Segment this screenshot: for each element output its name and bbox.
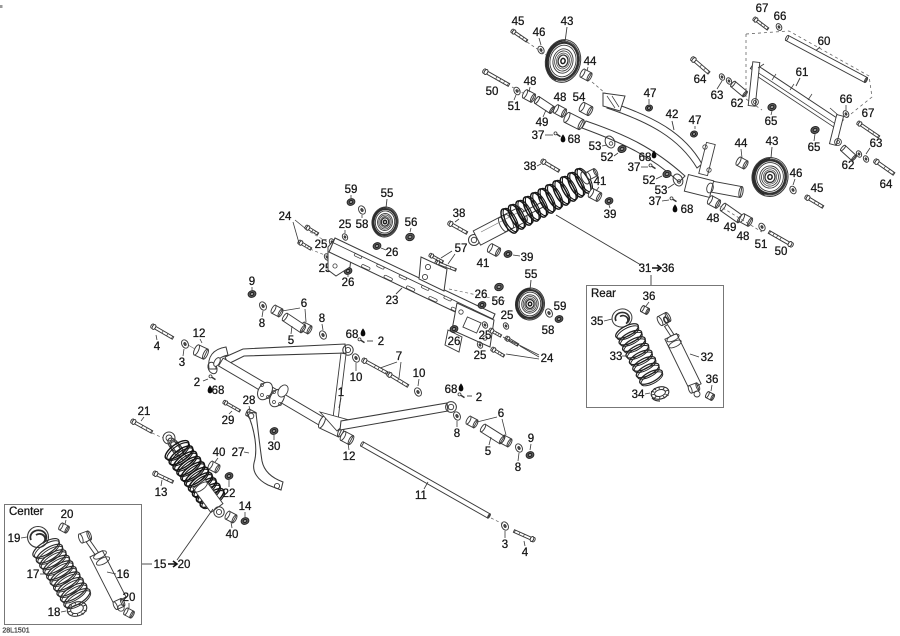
svg-text:17: 17 xyxy=(27,569,40,581)
svg-text:8: 8 xyxy=(454,428,460,440)
svg-text:38: 38 xyxy=(524,161,537,173)
svg-text:23: 23 xyxy=(386,295,399,307)
svg-text:1: 1 xyxy=(338,387,344,399)
svg-text:65: 65 xyxy=(765,116,778,128)
svg-text:35: 35 xyxy=(591,316,604,328)
svg-text:59: 59 xyxy=(345,184,358,196)
svg-text:41: 41 xyxy=(594,176,607,188)
svg-text:45: 45 xyxy=(811,183,824,195)
svg-text:48: 48 xyxy=(707,213,720,225)
svg-text:68: 68 xyxy=(568,134,581,146)
svg-text:8: 8 xyxy=(319,313,325,325)
svg-text:49: 49 xyxy=(724,222,737,234)
svg-text:14: 14 xyxy=(239,501,252,513)
svg-text:44: 44 xyxy=(735,138,748,150)
svg-text:48: 48 xyxy=(524,76,537,88)
svg-text:68: 68 xyxy=(639,152,652,164)
svg-text:32: 32 xyxy=(701,352,714,364)
svg-text:30: 30 xyxy=(268,441,281,453)
svg-text:18: 18 xyxy=(48,607,61,619)
svg-text:26: 26 xyxy=(386,247,399,259)
svg-text:5: 5 xyxy=(288,335,294,347)
svg-text:39: 39 xyxy=(604,209,617,221)
svg-text:19: 19 xyxy=(8,533,21,545)
svg-text:46: 46 xyxy=(533,27,546,39)
svg-text:58: 58 xyxy=(356,219,369,231)
svg-text:8: 8 xyxy=(259,318,265,330)
svg-text:44: 44 xyxy=(584,56,597,68)
svg-text:20: 20 xyxy=(123,592,136,604)
svg-text:15: 15 xyxy=(154,559,167,571)
svg-text:63: 63 xyxy=(870,138,883,150)
svg-text:63: 63 xyxy=(711,90,724,102)
svg-text:9: 9 xyxy=(249,276,255,288)
svg-text:49: 49 xyxy=(536,117,549,129)
svg-text:47: 47 xyxy=(689,115,702,127)
svg-text:11: 11 xyxy=(415,490,427,502)
svg-text:58: 58 xyxy=(542,325,555,337)
svg-text:13: 13 xyxy=(155,487,168,499)
svg-text:39: 39 xyxy=(521,252,534,264)
svg-text:61: 61 xyxy=(796,67,809,79)
svg-text:24: 24 xyxy=(541,353,554,365)
svg-text:51: 51 xyxy=(508,101,521,113)
svg-text:28: 28 xyxy=(243,395,256,407)
svg-text:33: 33 xyxy=(610,351,623,363)
svg-text:7: 7 xyxy=(396,351,402,363)
svg-text:26: 26 xyxy=(342,277,355,289)
svg-text:37: 37 xyxy=(649,196,662,208)
svg-text:67: 67 xyxy=(756,3,769,15)
svg-text:52: 52 xyxy=(601,152,614,164)
svg-text:43: 43 xyxy=(561,16,574,28)
svg-text:10: 10 xyxy=(350,372,363,384)
svg-text:36: 36 xyxy=(662,263,675,275)
svg-text:6: 6 xyxy=(498,408,504,420)
svg-text:66: 66 xyxy=(774,11,787,23)
svg-text:26: 26 xyxy=(448,336,461,348)
svg-text:62: 62 xyxy=(842,160,855,172)
svg-text:4: 4 xyxy=(522,547,529,559)
svg-text:4: 4 xyxy=(154,341,161,353)
svg-text:25: 25 xyxy=(474,350,487,362)
svg-text:53: 53 xyxy=(589,141,602,153)
svg-text:2: 2 xyxy=(194,377,200,389)
svg-text:12: 12 xyxy=(343,451,356,463)
svg-text:68: 68 xyxy=(445,384,458,396)
svg-text:66: 66 xyxy=(840,94,853,106)
svg-text:56: 56 xyxy=(492,296,505,308)
svg-text:36: 36 xyxy=(706,374,719,386)
svg-text:10: 10 xyxy=(413,368,426,380)
svg-text:46: 46 xyxy=(790,168,803,180)
svg-text:34: 34 xyxy=(632,389,645,401)
svg-text:28L1501: 28L1501 xyxy=(2,628,29,635)
svg-text:47: 47 xyxy=(644,88,657,100)
svg-text:3: 3 xyxy=(179,357,185,369)
svg-text:68: 68 xyxy=(681,204,694,216)
svg-text:48: 48 xyxy=(737,231,750,243)
svg-text:8: 8 xyxy=(515,462,521,474)
svg-text:59: 59 xyxy=(554,301,567,313)
svg-text:62: 62 xyxy=(731,98,744,110)
svg-text:20: 20 xyxy=(178,559,191,571)
svg-text:40: 40 xyxy=(226,529,239,541)
svg-text:52: 52 xyxy=(643,175,656,187)
svg-text:29: 29 xyxy=(222,415,235,427)
svg-text:64: 64 xyxy=(880,179,893,191)
svg-text:24: 24 xyxy=(279,211,292,223)
svg-text:2: 2 xyxy=(476,392,482,404)
svg-text:57: 57 xyxy=(455,243,468,255)
svg-text:68: 68 xyxy=(212,385,225,397)
svg-text:6: 6 xyxy=(301,298,307,310)
svg-text:64: 64 xyxy=(694,74,707,86)
svg-text:Center: Center xyxy=(9,506,44,518)
svg-text:55: 55 xyxy=(381,188,394,200)
svg-text:68: 68 xyxy=(346,329,359,341)
svg-text:41: 41 xyxy=(477,258,490,270)
svg-text:45: 45 xyxy=(512,16,525,28)
svg-text:56: 56 xyxy=(405,217,418,229)
svg-text:50: 50 xyxy=(486,86,499,98)
svg-text:65: 65 xyxy=(808,142,821,154)
svg-text:2: 2 xyxy=(378,336,384,348)
svg-text:9: 9 xyxy=(528,433,534,445)
svg-text:37: 37 xyxy=(532,130,545,142)
svg-text:42: 42 xyxy=(666,109,679,121)
svg-text:3: 3 xyxy=(502,539,508,551)
svg-text:43: 43 xyxy=(766,136,779,148)
svg-text:31: 31 xyxy=(639,263,652,275)
svg-text:27: 27 xyxy=(232,447,245,459)
svg-text:38: 38 xyxy=(453,208,466,220)
svg-text:36: 36 xyxy=(643,291,656,303)
svg-text:55: 55 xyxy=(525,269,538,281)
svg-text:51: 51 xyxy=(755,239,768,251)
svg-text:25: 25 xyxy=(501,310,514,322)
svg-text:25: 25 xyxy=(339,219,352,231)
svg-text:37: 37 xyxy=(628,162,641,174)
svg-text:21: 21 xyxy=(138,406,151,418)
svg-text:60: 60 xyxy=(818,36,831,48)
svg-text:40: 40 xyxy=(213,447,226,459)
svg-text:48: 48 xyxy=(554,92,567,104)
svg-text:16: 16 xyxy=(117,569,130,581)
svg-text:Rear: Rear xyxy=(591,288,616,300)
svg-text:67: 67 xyxy=(862,108,875,120)
svg-text:50: 50 xyxy=(775,246,788,258)
svg-text:20: 20 xyxy=(61,509,74,521)
svg-text:5: 5 xyxy=(485,446,491,458)
svg-text:12: 12 xyxy=(193,328,206,340)
